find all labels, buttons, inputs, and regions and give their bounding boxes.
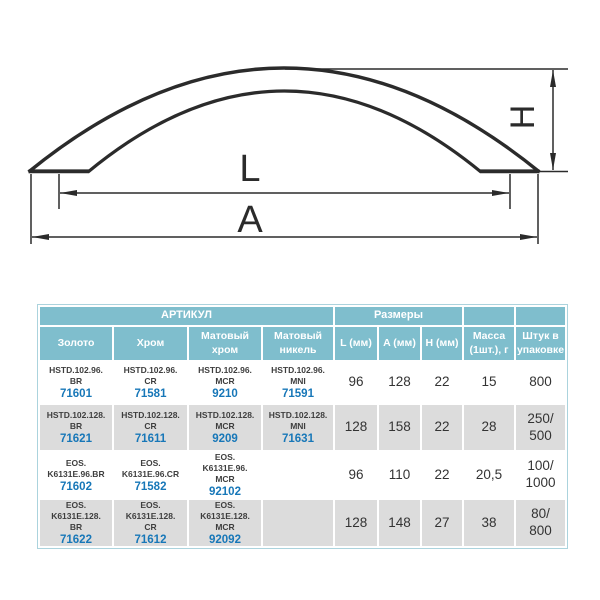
size-l-cell: 128 [335, 500, 377, 546]
h-dim-label: H [504, 105, 542, 130]
article-cell-empty [263, 500, 333, 546]
pack-cell: 250/ 500 [516, 405, 565, 450]
table-row: HSTD.102.128. BR 71621 HSTD.102.128. CR … [40, 405, 565, 450]
article-cell: HSTD.102.128. BR 71621 [40, 405, 112, 450]
article-number: 71582 [114, 481, 187, 493]
table-row: EOS. K6131E.128. BR 71622 EOS. K6131E.12… [40, 500, 565, 546]
pack-cell: 800 [516, 362, 565, 403]
size-a-cell: 158 [379, 405, 420, 450]
header-l-mm: L (мм) [335, 327, 377, 360]
l-arrow-right-icon [492, 190, 509, 196]
mass-cell: 38 [464, 500, 514, 546]
mass-cell: 20,5 [464, 452, 514, 498]
size-h-cell: 22 [422, 405, 462, 450]
article-code: HSTD.102.128. MNI [263, 410, 333, 432]
l-arrow-left-icon [60, 190, 77, 196]
pack-cell: 80/ 800 [516, 500, 565, 546]
header-empty-pack [516, 307, 565, 325]
header-chrome: Хром [114, 327, 187, 360]
article-number: 9209 [189, 433, 261, 445]
article-number: 71621 [40, 433, 112, 445]
size-a-cell: 148 [379, 500, 420, 546]
size-a-cell: 128 [379, 362, 420, 403]
table-row: HSTD.102.96. BR 71601 HSTD.102.96. CR 71… [40, 362, 565, 403]
article-code: EOS. K6131E.96. MCR [189, 452, 261, 485]
header-sizes-group: Размеры [335, 307, 462, 325]
handle-technical-drawing: H L A [0, 0, 600, 270]
article-cell: HSTD.102.128. MNI 71631 [263, 405, 333, 450]
article-cell: EOS. K6131E.128. MCR 92092 [189, 500, 261, 546]
article-cell: EOS. K6131E.96. MCR 92102 [189, 452, 261, 498]
size-h-cell: 22 [422, 362, 462, 403]
header-empty-mass [464, 307, 514, 325]
size-a-cell: 110 [379, 452, 420, 498]
article-cell: HSTD.102.96. MNI 71591 [263, 362, 333, 403]
size-l-cell: 128 [335, 405, 377, 450]
article-code: EOS. K6131E.96.CR [114, 458, 187, 480]
article-cell-empty [263, 452, 333, 498]
size-l-cell: 96 [335, 452, 377, 498]
article-code: HSTD.102.128. CR [114, 410, 187, 432]
article-code: EOS. K6131E.128. MCR [189, 500, 261, 533]
header-group-row: АРТИКУЛ Размеры [40, 307, 565, 325]
article-cell: EOS. K6131E.96.CR 71582 [114, 452, 187, 498]
article-code: EOS. K6131E.96.BR [40, 458, 112, 480]
inner-arc-path [88, 91, 481, 172]
article-number: 71591 [263, 388, 333, 400]
article-code: HSTD.102.128. BR [40, 410, 112, 432]
article-number: 71601 [40, 388, 112, 400]
article-number: 92092 [189, 534, 261, 546]
article-cell: HSTD.102.96. CR 71581 [114, 362, 187, 403]
article-number: 71611 [114, 433, 187, 445]
a-dim-label: A [237, 199, 263, 241]
article-code: HSTD.102.96. CR [114, 365, 187, 387]
article-cell: HSTD.102.128. MCR 9209 [189, 405, 261, 450]
pack-cell: 100/ 1000 [516, 452, 565, 498]
size-h-cell: 27 [422, 500, 462, 546]
article-number: 71602 [40, 481, 112, 493]
header-columns-row: Золото Хром Матовый хром Матовый никель … [40, 327, 565, 360]
article-cell: HSTD.102.96. MCR 9210 [189, 362, 261, 403]
spec-table-container: АРТИКУЛ Размеры Золото Хром Матовый хром… [37, 304, 568, 549]
article-cell: HSTD.102.96. BR 71601 [40, 362, 112, 403]
mass-cell: 15 [464, 362, 514, 403]
header-matte-nickel: Матовый никель [263, 327, 333, 360]
h-arrow-up-icon [550, 70, 556, 87]
mass-cell: 28 [464, 405, 514, 450]
a-arrow-right-icon [520, 234, 537, 240]
spec-table: АРТИКУЛ Размеры Золото Хром Матовый хром… [38, 305, 567, 548]
size-l-cell: 96 [335, 362, 377, 403]
header-h-mm: H (мм) [422, 327, 462, 360]
header-gold: Золото [40, 327, 112, 360]
table-row: EOS. K6131E.96.BR 71602 EOS. K6131E.96.C… [40, 452, 565, 498]
article-code: HSTD.102.96. BR [40, 365, 112, 387]
article-cell: EOS. K6131E.96.BR 71602 [40, 452, 112, 498]
article-cell: HSTD.102.128. CR 71611 [114, 405, 187, 450]
article-code: HSTD.102.128. MCR [189, 410, 261, 432]
article-cell: EOS. K6131E.128. BR 71622 [40, 500, 112, 546]
header-pack: Штук в упаковке [516, 327, 565, 360]
header-mass: Масса (1шт.), г [464, 327, 514, 360]
article-cell: EOS. K6131E.128. CR 71612 [114, 500, 187, 546]
header-a-mm: A (мм) [379, 327, 420, 360]
size-h-cell: 22 [422, 452, 462, 498]
article-code: EOS. K6131E.128. BR [40, 500, 112, 533]
article-number: 71631 [263, 433, 333, 445]
header-matte-chrome: Матовый хром [189, 327, 261, 360]
article-code: EOS. K6131E.128. CR [114, 500, 187, 533]
h-arrow-down-icon [550, 153, 556, 170]
article-code: HSTD.102.96. MNI [263, 365, 333, 387]
header-article-group: АРТИКУЛ [40, 307, 333, 325]
article-number: 71622 [40, 534, 112, 546]
l-dim-label: L [239, 148, 260, 190]
article-number: 92102 [189, 486, 261, 498]
article-code: HSTD.102.96. MCR [189, 365, 261, 387]
article-number: 9210 [189, 388, 261, 400]
article-number: 71612 [114, 534, 187, 546]
a-arrow-left-icon [32, 234, 49, 240]
article-number: 71581 [114, 388, 187, 400]
